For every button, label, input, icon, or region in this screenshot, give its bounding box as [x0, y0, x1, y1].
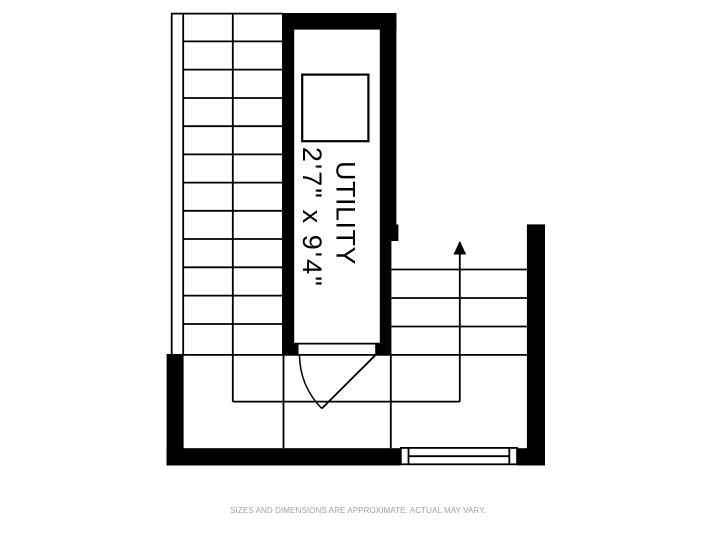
svg-text:SIZES AND DIMENSIONS ARE APPRO: SIZES AND DIMENSIONS ARE APPROXIMATE, AC…	[230, 506, 486, 515]
svg-text:UTILITY: UTILITY	[331, 161, 361, 265]
svg-text:2'7" x 9'4": 2'7" x 9'4"	[297, 147, 327, 288]
